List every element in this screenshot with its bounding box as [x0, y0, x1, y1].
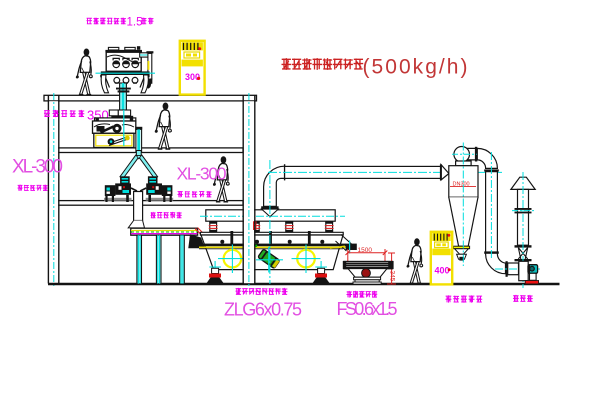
svg-text:ZLG6x0.75: ZLG6x0.75	[224, 300, 302, 320]
svg-text:400: 400	[435, 266, 450, 276]
svg-text:1500: 1500	[358, 247, 373, 254]
svg-text:345: 345	[389, 271, 396, 282]
svg-text:1.5: 1.5	[127, 17, 143, 29]
svg-text:XL-300: XL-300	[12, 157, 63, 178]
svg-text:XL-300: XL-300	[177, 164, 227, 184]
svg-text:FS0.6x1.5: FS0.6x1.5	[337, 299, 398, 319]
svg-text:(500kg/h): (500kg/h)	[363, 56, 468, 79]
svg-text:300: 300	[185, 72, 200, 82]
